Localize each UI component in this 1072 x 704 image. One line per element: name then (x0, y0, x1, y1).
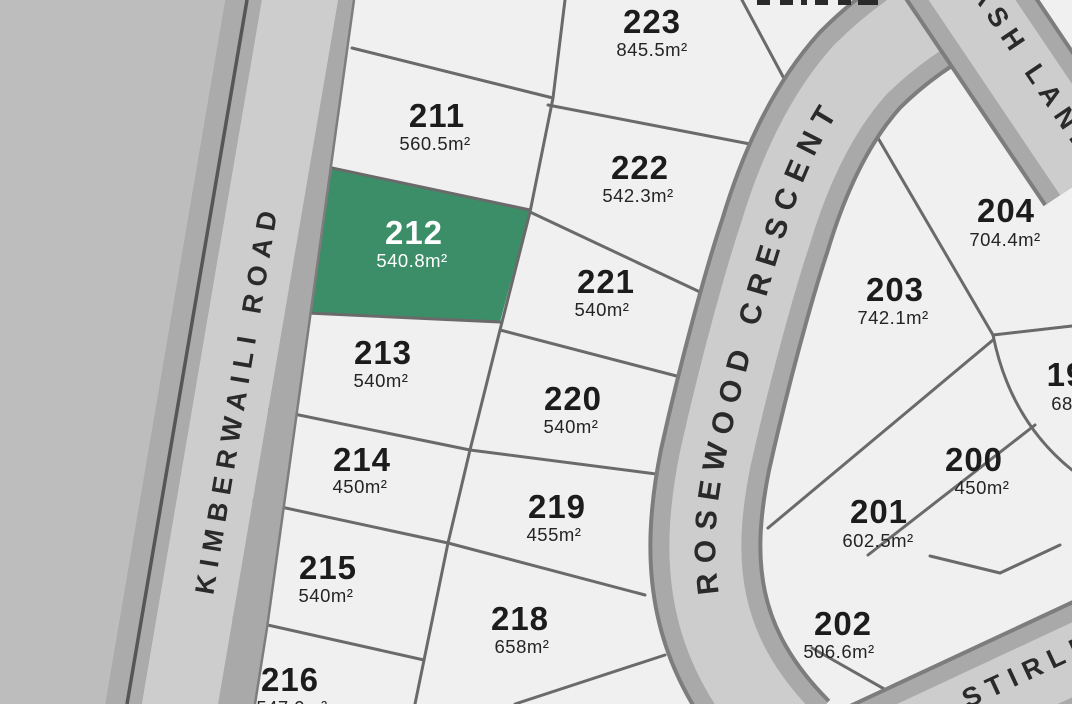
svg-text:450m²: 450m² (333, 476, 388, 497)
lot-label-213[interactable]: 213 540m² (354, 334, 413, 391)
svg-text:218: 218 (491, 600, 549, 637)
lot-map: KIMBERWAILI ROAD ROSEWOOD CRESCENT STIRL… (0, 0, 1072, 704)
svg-text:540m²: 540m² (354, 370, 409, 391)
svg-text:658m²: 658m² (495, 636, 550, 657)
lot-label-200[interactable]: 200 450m² (945, 441, 1010, 498)
lot-label-221[interactable]: 221 540m² (575, 263, 636, 320)
lot-label-223[interactable]: 223 845.5m² (616, 3, 687, 60)
svg-text:602.5m²: 602.5m² (842, 530, 913, 551)
lot-label-222[interactable]: 222 542.3m² (602, 149, 673, 206)
lot-label-201[interactable]: 201 602.5m² (842, 493, 913, 551)
svg-text:540m²: 540m² (575, 299, 630, 320)
svg-text:704.4m²: 704.4m² (969, 229, 1040, 250)
lot-label-204[interactable]: 204 704.4m² (969, 192, 1040, 250)
svg-text:201: 201 (850, 493, 908, 530)
svg-text:200: 200 (945, 441, 1003, 478)
svg-text:742.1m²: 742.1m² (857, 307, 928, 328)
svg-text:216: 216 (261, 661, 319, 698)
lot-label-211[interactable]: 211 560.5m² (399, 97, 470, 154)
lot-label-220[interactable]: 220 540m² (544, 380, 603, 437)
svg-text:560.5m²: 560.5m² (399, 133, 470, 154)
lot-map-canvas: KIMBERWAILI ROAD ROSEWOOD CRESCENT STIRL… (0, 0, 1072, 704)
svg-text:215: 215 (299, 549, 357, 586)
svg-text:455m²: 455m² (527, 524, 582, 545)
lot-label-215[interactable]: 215 540m² (299, 549, 358, 606)
svg-text:211: 211 (409, 97, 465, 134)
svg-text:68: 68 (1051, 393, 1072, 414)
svg-text:203: 203 (866, 271, 924, 308)
svg-text:540m²: 540m² (299, 585, 354, 606)
svg-text:214: 214 (333, 441, 391, 478)
svg-text:542.3m²: 542.3m² (602, 185, 673, 206)
lot-label-212-highlighted[interactable]: 212 540.8m² (376, 214, 447, 271)
svg-text:220: 220 (544, 380, 602, 417)
svg-text:222: 222 (611, 149, 669, 186)
svg-text:213: 213 (354, 334, 412, 371)
svg-text:204: 204 (977, 192, 1035, 229)
svg-text:223: 223 (623, 3, 681, 40)
svg-text:221: 221 (577, 263, 635, 300)
lot-label-203[interactable]: 203 742.1m² (857, 271, 928, 328)
lot-label-216[interactable]: 216 547.9m² (256, 661, 327, 704)
svg-text:506.6m²: 506.6m² (803, 641, 874, 662)
svg-text:202: 202 (814, 605, 872, 642)
svg-text:547.9m²: 547.9m² (256, 697, 327, 704)
svg-text:540.8m²: 540.8m² (376, 250, 447, 271)
svg-text:845.5m²: 845.5m² (616, 39, 687, 60)
lot-label-214[interactable]: 214 450m² (333, 441, 392, 497)
lot-label-19x-clipped[interactable]: 19 68 (1047, 356, 1072, 414)
svg-text:219: 219 (528, 488, 586, 525)
svg-text:450m²: 450m² (955, 477, 1010, 498)
svg-text:212: 212 (385, 214, 443, 251)
svg-text:19: 19 (1047, 356, 1072, 393)
lot-label-219[interactable]: 219 455m² (527, 488, 587, 545)
lot-label-202[interactable]: 202 506.6m² (803, 605, 874, 662)
lot-label-218[interactable]: 218 658m² (491, 600, 550, 657)
svg-text:540m²: 540m² (544, 416, 599, 437)
